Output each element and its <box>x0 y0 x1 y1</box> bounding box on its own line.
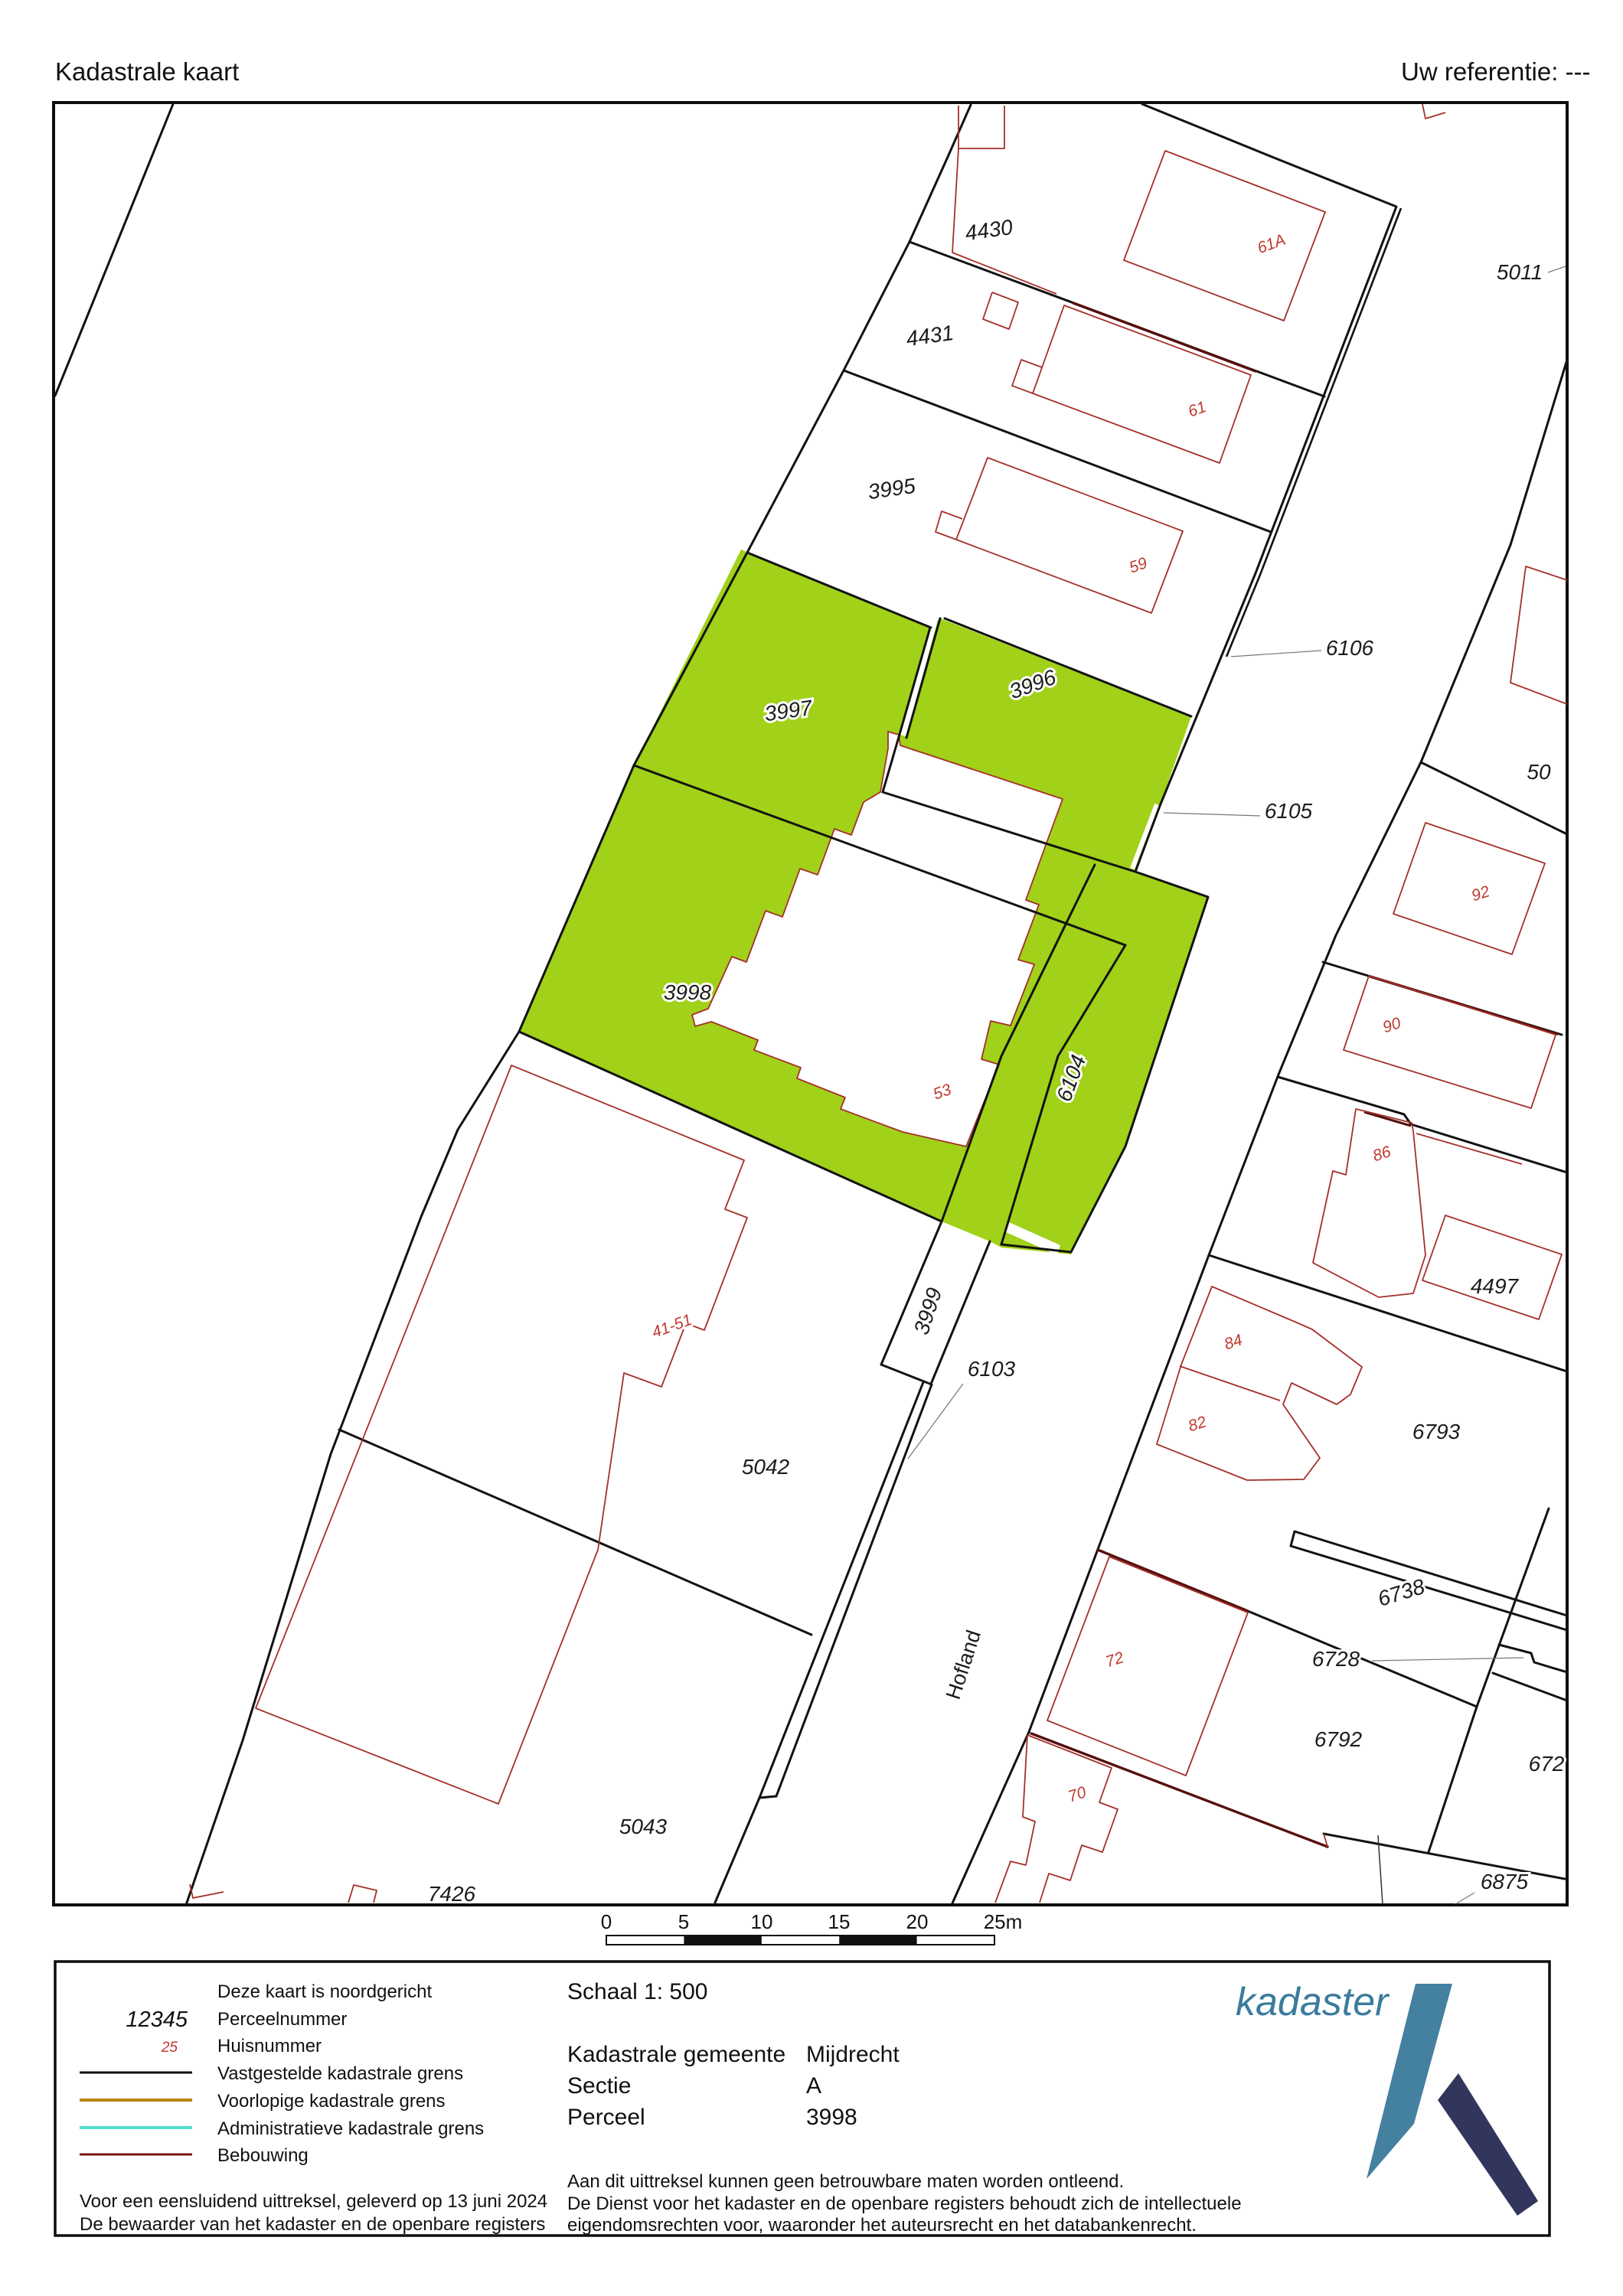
svg-text:Voor een eensluidend uittrekse: Voor een eensluidend uittreksel, gelever… <box>80 2191 547 2212</box>
svg-text:10: 10 <box>751 1910 773 1933</box>
svg-text:6792: 6792 <box>1314 1727 1363 1751</box>
svg-text:25: 25 <box>161 2040 178 2056</box>
svg-text:7426: 7426 <box>428 1882 476 1906</box>
svg-text:3998: 3998 <box>806 2105 857 2130</box>
svg-text:Administratieve kadastrale gre: Administratieve kadastrale grens <box>217 2118 484 2139</box>
svg-text:Kadastrale kaart: Kadastrale kaart <box>55 57 239 86</box>
svg-text:15: 15 <box>828 1910 851 1933</box>
svg-text:Vastgestelde kadastrale grens: Vastgestelde kadastrale grens <box>217 2063 463 2084</box>
svg-text:Kadastrale gemeente: Kadastrale gemeente <box>567 2042 785 2067</box>
svg-text:5011: 5011 <box>1497 260 1543 284</box>
svg-text:Aan dit uittreksel kunnen geen: Aan dit uittreksel kunnen geen betrouwba… <box>567 2171 1124 2192</box>
svg-text:eigendomsrechten voor, waarond: eigendomsrechten voor, waaronder het aut… <box>567 2215 1197 2236</box>
svg-text:6106: 6106 <box>1326 636 1374 660</box>
svg-text:Deze kaart is noordgericht: Deze kaart is noordgericht <box>217 1981 432 2002</box>
svg-text:0: 0 <box>601 1910 612 1933</box>
svg-text:6103: 6103 <box>968 1357 1016 1381</box>
svg-text:672: 672 <box>1529 1752 1565 1776</box>
svg-text:Mijdrecht: Mijdrecht <box>806 2042 900 2067</box>
svg-text:kadaster: kadaster <box>1236 1980 1390 2024</box>
svg-text:De Dienst voor het kadaster en: De Dienst voor het kadaster en de openba… <box>567 2193 1242 2214</box>
svg-text:5: 5 <box>678 1910 689 1933</box>
svg-text:Huisnummer: Huisnummer <box>217 2036 322 2056</box>
svg-text:4497: 4497 <box>1471 1274 1520 1298</box>
svg-text:Voorlopige kadastrale grens: Voorlopige kadastrale grens <box>217 2091 446 2112</box>
svg-text:Bebouwing: Bebouwing <box>217 2145 309 2166</box>
svg-text:Perceelnummer: Perceelnummer <box>217 2009 347 2030</box>
svg-text:5042: 5042 <box>742 1455 790 1479</box>
svg-text:50: 50 <box>1527 760 1551 784</box>
svg-text:20: 20 <box>906 1910 929 1933</box>
svg-text:Schaal 1: 500: Schaal 1: 500 <box>567 1979 707 2004</box>
svg-text:5043: 5043 <box>619 1815 668 1838</box>
svg-text:3998: 3998 <box>664 980 712 1004</box>
svg-text:6728: 6728 <box>1312 1647 1360 1671</box>
svg-text:A: A <box>806 2073 821 2099</box>
svg-text:6105: 6105 <box>1265 799 1313 823</box>
svg-text:Uw referentie: ---: Uw referentie: --- <box>1401 57 1591 86</box>
svg-text:Perceel: Perceel <box>567 2105 645 2130</box>
svg-text:12345: 12345 <box>126 2007 188 2032</box>
svg-text:6793: 6793 <box>1412 1420 1461 1443</box>
svg-text:De bewaarder van het kadaster: De bewaarder van het kadaster en de open… <box>80 2214 545 2235</box>
svg-text:25m: 25m <box>984 1910 1023 1933</box>
svg-text:6875: 6875 <box>1481 1870 1529 1893</box>
svg-text:Sectie: Sectie <box>567 2073 631 2099</box>
